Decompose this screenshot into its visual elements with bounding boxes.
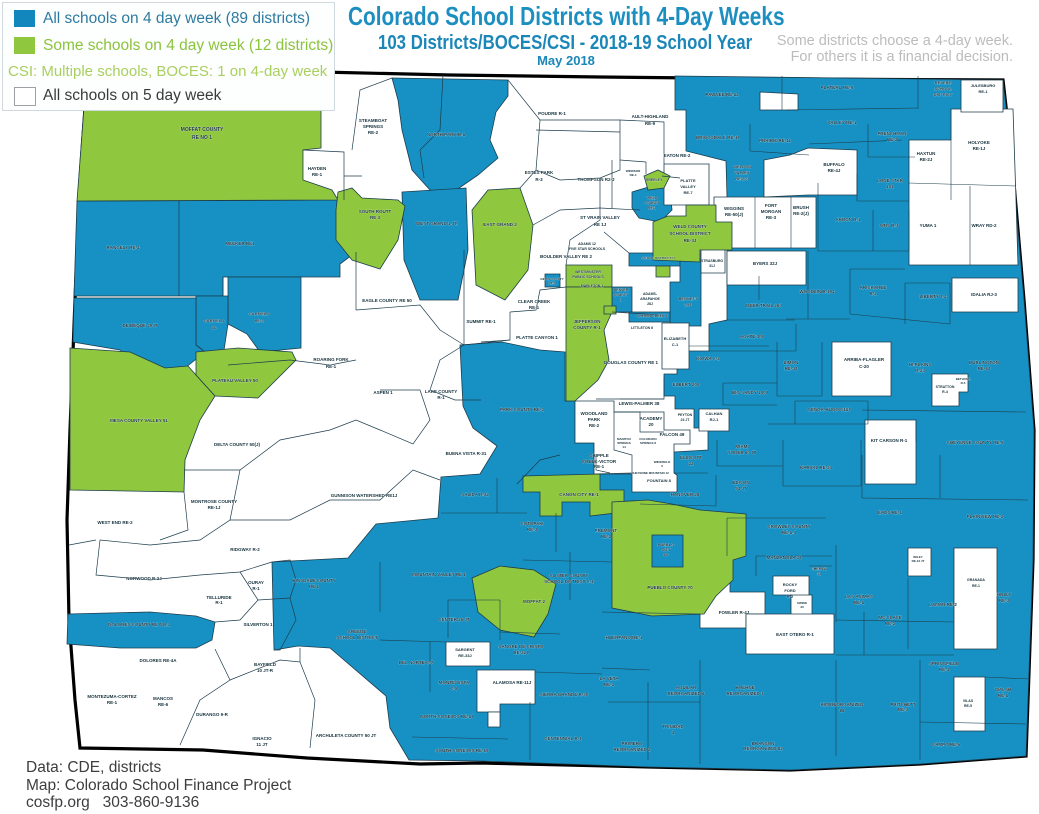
svg-text:NORTH CONEJOS RE-1J: NORTH CONEJOS RE-1J bbox=[420, 714, 474, 719]
svg-text:GARFIELD: GARFIELD bbox=[204, 318, 225, 323]
svg-text:NORWOOD R-2J: NORWOOD R-2J bbox=[126, 576, 162, 581]
svg-text:PAWNEE RE-12: PAWNEE RE-12 bbox=[705, 92, 739, 97]
svg-text:RE-1: RE-1 bbox=[529, 305, 540, 310]
svg-text:MORGAN: MORGAN bbox=[761, 209, 782, 214]
svg-text:RE-2J: RE-2J bbox=[920, 157, 933, 162]
svg-text:C-20: C-20 bbox=[859, 364, 869, 369]
svg-text:SALIDA R-32: SALIDA R-32 bbox=[461, 492, 489, 497]
svg-text:PARK: PARK bbox=[588, 417, 601, 422]
svg-text:HOLLY: HOLLY bbox=[997, 592, 1012, 597]
svg-text:ROCKY: ROCKY bbox=[783, 582, 798, 587]
svg-text:AGATE 300: AGATE 300 bbox=[740, 334, 765, 339]
svg-text:WEST END RE-2: WEST END RE-2 bbox=[97, 520, 133, 525]
svg-text:EAST GRAND 2: EAST GRAND 2 bbox=[483, 222, 517, 227]
svg-text:RE-1: RE-1 bbox=[854, 600, 865, 605]
svg-text:OURAY: OURAY bbox=[248, 580, 264, 585]
svg-text:FALCON 49: FALCON 49 bbox=[660, 432, 685, 437]
svg-text:ELIZABETH: ELIZABETH bbox=[664, 336, 687, 341]
svg-text:EAST OTERO R-1: EAST OTERO R-1 bbox=[776, 632, 814, 637]
svg-text:GENOA-HUGO C113: GENOA-HUGO C113 bbox=[807, 407, 851, 412]
svg-text:RE-6: RE-6 bbox=[158, 702, 169, 707]
svg-text:ACADEMY: ACADEMY bbox=[640, 416, 663, 421]
svg-text:1: 1 bbox=[620, 298, 622, 302]
svg-text:RE-13 JT: RE-13 JT bbox=[912, 559, 925, 563]
svg-text:POUDRE R-1: POUDRE R-1 bbox=[538, 111, 566, 116]
svg-text:RE-2: RE-2 bbox=[601, 534, 612, 539]
svg-text:CHERRY CREEK 5: CHERRY CREEK 5 bbox=[637, 314, 668, 318]
svg-text:BRIGGSDALE RE-10: BRIGGSDALE RE-10 bbox=[696, 135, 741, 140]
svg-text:KARVAL RE-23: KARVAL RE-23 bbox=[800, 465, 833, 470]
svg-text:LEWIS-PALMER 38: LEWIS-PALMER 38 bbox=[619, 401, 660, 406]
svg-text:FIVE STAR SCHOOLS: FIVE STAR SCHOOLS bbox=[569, 247, 606, 251]
svg-text:BIG SANDY 100J: BIG SANDY 100J bbox=[732, 390, 769, 395]
svg-text:RE-1: RE-1 bbox=[594, 464, 605, 469]
svg-text:SCHOOL DISTRICT: SCHOOL DISTRICT bbox=[669, 231, 710, 236]
svg-text:MEEKER RE1: MEEKER RE1 bbox=[225, 241, 255, 246]
svg-text:SPRINGFIELD: SPRINGFIELD bbox=[929, 661, 960, 666]
svg-text:ST VRAIN VALLEY: ST VRAIN VALLEY bbox=[580, 215, 620, 220]
svg-text:CENTER 26 JT: CENTER 26 JT bbox=[438, 617, 470, 622]
svg-text:ARAPAHOE: ARAPAHOE bbox=[640, 297, 660, 301]
svg-text:FRENCHMAN: FRENCHMAN bbox=[878, 131, 907, 136]
svg-text:23 JT: 23 JT bbox=[681, 418, 691, 422]
svg-text:MOFFAT 2: MOFFAT 2 bbox=[523, 599, 545, 604]
svg-text:PLATTE: PLATTE bbox=[680, 178, 696, 183]
svg-text:LONE STAR: LONE STAR bbox=[877, 178, 903, 183]
svg-text:RE-4: RE-4 bbox=[630, 173, 637, 177]
svg-text:MC CLAVE: MC CLAVE bbox=[878, 615, 901, 620]
svg-text:R-4: R-4 bbox=[942, 390, 948, 394]
svg-text:DEL NORTE C-7: DEL NORTE C-7 bbox=[399, 660, 434, 665]
svg-text:DURANGO 9-R: DURANGO 9-R bbox=[196, 712, 229, 717]
svg-text:RE-3J: RE-3J bbox=[684, 238, 697, 243]
svg-text:RE-5: RE-5 bbox=[964, 704, 972, 708]
svg-text:ESTES PARK: ESTES PARK bbox=[525, 170, 554, 175]
svg-text:31J: 31J bbox=[709, 264, 715, 268]
svg-text:R-1: R-1 bbox=[252, 586, 260, 591]
svg-text:HAXTUN: HAXTUN bbox=[917, 151, 936, 156]
svg-text:AKRON R-1: AKRON R-1 bbox=[835, 217, 860, 222]
svg-text:DOLORES COUNTY RE NO.2: DOLORES COUNTY RE NO.2 bbox=[108, 622, 170, 627]
svg-text:RE-20J: RE-20J bbox=[735, 176, 749, 181]
svg-text:LIBERTY J-4: LIBERTY J-4 bbox=[920, 294, 947, 299]
svg-text:HINSDALE COUNTY: HINSDALE COUNTY bbox=[292, 578, 335, 583]
svg-text:C-8: C-8 bbox=[450, 686, 458, 691]
svg-text:RE-3: RE-3 bbox=[527, 527, 538, 532]
svg-text:RE-1J: RE-1J bbox=[208, 505, 221, 510]
svg-text:RE-22J: RE-22J bbox=[513, 650, 529, 655]
svg-text:ARICKAREE: ARICKAREE bbox=[860, 285, 887, 290]
svg-text:RE-2: RE-2 bbox=[254, 318, 264, 323]
svg-text:ELBERT 200: ELBERT 200 bbox=[673, 382, 700, 387]
svg-text:PLAINVIEW RE-2: PLAINVIEW RE-2 bbox=[967, 514, 1004, 519]
svg-text:FOUNTAIN 8: FOUNTAIN 8 bbox=[647, 478, 671, 483]
svg-text:RE-1: RE-1 bbox=[312, 172, 323, 177]
svg-text:VALLEY: VALLEY bbox=[680, 184, 696, 189]
svg-text:HUERFANO RE-1: HUERFANO RE-1 bbox=[606, 635, 643, 640]
svg-text:CRIPPLE: CRIPPLE bbox=[589, 453, 609, 458]
svg-text:DE BEQUE 49JT: DE BEQUE 49JT bbox=[122, 323, 157, 328]
svg-text:ARRIBA-FLAGLER: ARRIBA-FLAGLER bbox=[844, 357, 885, 362]
svg-text:GUNNISON WATERSHED RE1J: GUNNISON WATERSHED RE1J bbox=[331, 493, 398, 498]
svg-text:EDISON: EDISON bbox=[732, 480, 749, 485]
svg-text:BOULDER VALLEY RE 2: BOULDER VALLEY RE 2 bbox=[540, 254, 593, 259]
svg-text:CLEAR CREEK: CLEAR CREEK bbox=[518, 299, 551, 304]
svg-text:WOODLAND: WOODLAND bbox=[581, 411, 609, 416]
svg-text:RE-7: RE-7 bbox=[683, 190, 693, 195]
svg-text:RE-3: RE-3 bbox=[999, 598, 1010, 603]
svg-text:RE-3: RE-3 bbox=[898, 707, 909, 712]
svg-text:WESTMINSTER: WESTMINSTER bbox=[575, 270, 601, 274]
svg-text:RE-1: RE-1 bbox=[549, 281, 556, 285]
svg-text:54 JT: 54 JT bbox=[735, 486, 747, 491]
svg-text:PRIMERO: PRIMERO bbox=[621, 741, 643, 746]
svg-text:HOEHNE: HOEHNE bbox=[735, 685, 754, 690]
svg-text:R-3: R-3 bbox=[535, 177, 543, 182]
svg-text:RE-1: RE-1 bbox=[326, 364, 337, 369]
svg-text:AGUILAR: AGUILAR bbox=[676, 685, 697, 690]
svg-text:RIDGWAY R-2: RIDGWAY R-2 bbox=[230, 547, 260, 552]
svg-text:COTOPAXI: COTOPAXI bbox=[520, 521, 543, 526]
svg-text:RE-3: RE-3 bbox=[766, 215, 777, 220]
svg-text:14: 14 bbox=[622, 445, 626, 449]
svg-text:33: 33 bbox=[800, 605, 804, 609]
svg-text:STRATTON: STRATTON bbox=[936, 385, 955, 389]
svg-text:RE 1J: RE 1J bbox=[594, 222, 607, 227]
svg-text:NORTH PARK R-1: NORTH PARK R-1 bbox=[427, 132, 466, 137]
svg-text:RE-1: RE-1 bbox=[998, 693, 1009, 698]
svg-text:LIMON: LIMON bbox=[784, 360, 799, 365]
svg-text:WOODLIN R-104: WOODLIN R-104 bbox=[799, 289, 835, 294]
svg-text:BRUSH: BRUSH bbox=[793, 205, 809, 210]
svg-text:HOLYOKE: HOLYOKE bbox=[968, 140, 990, 145]
svg-text:CHEYENNE MOUNTAIN 12: CHEYENNE MOUNTAIN 12 bbox=[631, 471, 669, 475]
svg-text:10 JT-R: 10 JT-R bbox=[257, 668, 274, 673]
svg-text:IGNACIO: IGNACIO bbox=[252, 736, 272, 741]
svg-text:SPRINGS: SPRINGS bbox=[363, 124, 383, 129]
svg-text:VALLEY RE-1: VALLEY RE-1 bbox=[828, 120, 857, 125]
svg-text:R-2: R-2 bbox=[869, 291, 877, 296]
svg-text:16: 16 bbox=[212, 325, 217, 330]
svg-text:COUNTY R-1: COUNTY R-1 bbox=[573, 325, 601, 330]
svg-text:RE NO 1: RE NO 1 bbox=[192, 135, 212, 141]
svg-text:RE-1-J: RE-1-J bbox=[782, 530, 797, 535]
svg-text:MONTROSE COUNTY: MONTROSE COUNTY bbox=[191, 499, 237, 504]
svg-text:AULT-HIGHLAND: AULT-HIGHLAND bbox=[632, 114, 669, 119]
svg-text:WELD COUNTY: WELD COUNTY bbox=[673, 224, 707, 229]
svg-text:RE-3: RE-3 bbox=[887, 137, 898, 142]
svg-text:RE-2: RE-2 bbox=[589, 423, 600, 428]
svg-text:ADAMS 12: ADAMS 12 bbox=[578, 242, 596, 246]
svg-text:MIAMI: MIAMI bbox=[735, 444, 748, 449]
svg-text:PLATEAU VALLEY 50: PLATEAU VALLEY 50 bbox=[212, 378, 258, 383]
svg-text:REORGANIZED 82: REORGANIZED 82 bbox=[743, 746, 783, 751]
svg-text:RE-1: RE-1 bbox=[978, 89, 988, 94]
svg-text:RE-4J: RE-4J bbox=[828, 168, 841, 173]
svg-text:GREELEY: GREELEY bbox=[646, 178, 663, 182]
svg-text:MONTE VISTA: MONTE VISTA bbox=[439, 680, 470, 685]
svg-text:ARCHULETA COUNTY 50 JT: ARCHULETA COUNTY 50 JT bbox=[316, 733, 377, 738]
svg-text:DISTRICT: DISTRICT bbox=[934, 92, 953, 97]
svg-text:PUEBLO COUNTY 70: PUEBLO COUNTY 70 bbox=[647, 585, 693, 590]
svg-text:THOMPSON R2-J: THOMPSON R2-J bbox=[577, 177, 615, 182]
svg-text:ELLICOTT: ELLICOTT bbox=[680, 455, 702, 460]
svg-text:VILAS: VILAS bbox=[963, 699, 974, 703]
svg-text:RE-2: RE-2 bbox=[604, 682, 615, 687]
svg-text:DEER TRAIL 26J: DEER TRAIL 26J bbox=[746, 303, 782, 308]
svg-text:JULESBURG: JULESBURG bbox=[971, 83, 996, 88]
svg-text:JEFFERSON: JEFFERSON bbox=[573, 319, 600, 324]
svg-text:RE-1: RE-1 bbox=[972, 584, 980, 588]
svg-text:PLATEAU RE-5: PLATEAU RE-5 bbox=[821, 85, 854, 90]
svg-text:LAS ANIMAS: LAS ANIMAS bbox=[845, 594, 873, 599]
svg-text:SUMMIT RE-1: SUMMIT RE-1 bbox=[466, 319, 496, 324]
svg-text:FREMONT: FREMONT bbox=[595, 528, 617, 533]
svg-text:DOUGLAS COUNTY RE 1: DOUGLAS COUNTY RE 1 bbox=[604, 360, 658, 365]
svg-text:ADAMS-: ADAMS- bbox=[643, 292, 658, 296]
svg-text:YUMA 1: YUMA 1 bbox=[920, 223, 937, 228]
svg-text:VALLEY: VALLEY bbox=[734, 170, 750, 175]
svg-text:HI-PLAINS: HI-PLAINS bbox=[909, 362, 932, 367]
svg-text:MESA COUNTY VALLEY 51: MESA COUNTY VALLEY 51 bbox=[110, 418, 168, 423]
svg-text:11 JT: 11 JT bbox=[256, 742, 268, 747]
svg-text:RE-50(J): RE-50(J) bbox=[725, 212, 744, 217]
svg-text:BYERS 32J: BYERS 32J bbox=[753, 261, 778, 266]
svg-text:31: 31 bbox=[817, 572, 821, 576]
svg-text:SIERRA GRANDE R-30: SIERRA GRANDE R-30 bbox=[540, 692, 589, 697]
svg-text:CENTENNIAL R-1: CENTENNIAL R-1 bbox=[544, 736, 582, 741]
svg-text:PLATTE CANYON 1: PLATTE CANYON 1 bbox=[516, 335, 558, 340]
svg-text:SOUTH CONEJOS RE-10: SOUTH CONEJOS RE-10 bbox=[435, 748, 489, 753]
svg-text:MANCOS: MANCOS bbox=[153, 696, 173, 701]
svg-text:HAYDEN: HAYDEN bbox=[308, 166, 327, 171]
svg-text:FORD: FORD bbox=[784, 588, 795, 593]
svg-text:SCHOOL DISTRICT: SCHOOL DISTRICT bbox=[336, 635, 377, 640]
svg-text:BENNETT: BENNETT bbox=[679, 296, 698, 301]
svg-text:WELD: WELD bbox=[647, 196, 658, 200]
svg-text:CHERAW: CHERAW bbox=[811, 567, 827, 571]
svg-text:FOWLER R-4J: FOWLER R-4J bbox=[719, 610, 750, 615]
svg-text:SARGENT: SARGENT bbox=[455, 647, 475, 652]
svg-text:RE-1J: RE-1J bbox=[973, 146, 986, 151]
svg-text:EATON RE-2: EATON RE-2 bbox=[664, 153, 691, 158]
svg-text:KIT CARSON R-1: KIT CARSON R-1 bbox=[871, 438, 908, 443]
svg-text:MANZANOLA 3J: MANZANOLA 3J bbox=[766, 555, 802, 560]
svg-text:CHEYENNE COUNTY RE-5: CHEYENNE COUNTY RE-5 bbox=[947, 440, 1004, 445]
svg-text:ROARING FORK: ROARING FORK bbox=[313, 357, 349, 362]
svg-text:RANGELY RE-4: RANGELY RE-4 bbox=[106, 245, 140, 250]
svg-text:EADS RE-1: EADS RE-1 bbox=[878, 510, 903, 515]
svg-text:RE-1: RE-1 bbox=[648, 206, 656, 210]
svg-text:IDALIA RJ-3: IDALIA RJ-3 bbox=[971, 292, 997, 297]
svg-text:LITTLETON 6: LITTLETON 6 bbox=[631, 326, 653, 330]
svg-text:RE-1: RE-1 bbox=[107, 700, 118, 705]
svg-text:RE-4J: RE-4J bbox=[785, 366, 798, 371]
svg-text:MONTEZUMA-CORTEZ: MONTEZUMA-CORTEZ bbox=[87, 694, 136, 699]
svg-text:FORT: FORT bbox=[765, 203, 777, 208]
svg-text:ASPEN 1: ASPEN 1 bbox=[373, 390, 393, 395]
svg-text:RE-33J: RE-33J bbox=[458, 653, 472, 658]
svg-text:PRAIRIE RE-11: PRAIRIE RE-11 bbox=[759, 138, 792, 143]
svg-text:CREEDE: CREEDE bbox=[348, 629, 367, 634]
svg-text:GRANADA: GRANADA bbox=[967, 578, 985, 582]
svg-text:LAMAR RE-2: LAMAR RE-2 bbox=[929, 602, 957, 607]
svg-text:RE-2(J): RE-2(J) bbox=[793, 211, 809, 216]
svg-text:CROWLEY COUNTY: CROWLEY COUNTY bbox=[767, 524, 810, 529]
svg-text:HANOVER 28: HANOVER 28 bbox=[671, 492, 700, 497]
svg-text:KIM REORGANIZED: KIM REORGANIZED bbox=[821, 702, 865, 707]
svg-text:TRINIDAD: TRINIDAD bbox=[662, 724, 684, 729]
svg-text:LAKE COUNTY: LAKE COUNTY bbox=[425, 389, 458, 394]
svg-text:CUSTER COUNTY: CUSTER COUNTY bbox=[550, 573, 589, 578]
svg-text:CALHAN: CALHAN bbox=[706, 411, 723, 416]
svg-text:SANGRE DE CRISTO: SANGRE DE CRISTO bbox=[499, 644, 544, 649]
svg-text:RE 3: RE 3 bbox=[370, 215, 381, 220]
svg-text:WRAY RD-2: WRAY RD-2 bbox=[971, 223, 997, 228]
svg-text:22: 22 bbox=[688, 461, 694, 466]
svg-text:SILVERTON 1: SILVERTON 1 bbox=[243, 622, 273, 627]
svg-text:REORGANIZED 6: REORGANIZED 6 bbox=[667, 691, 705, 696]
svg-text:MOUNTAIN VALLEY RE 1: MOUNTAIN VALLEY RE 1 bbox=[412, 572, 466, 577]
svg-text:SCHOOL DISTRICT 27J: SCHOOL DISTRICT 27J bbox=[641, 256, 675, 260]
svg-text:COUNTY: COUNTY bbox=[614, 293, 629, 297]
svg-text:R-1: R-1 bbox=[215, 600, 223, 605]
svg-text:BURLINGTON: BURLINGTON bbox=[969, 360, 999, 365]
svg-text:DELTA COUNTY 50(J): DELTA COUNTY 50(J) bbox=[214, 442, 261, 447]
svg-text:REORGANIZED 2: REORGANIZED 2 bbox=[613, 747, 651, 752]
svg-text:OTIS R-3: OTIS R-3 bbox=[879, 223, 898, 228]
svg-text:ALAMOSA RE-11J: ALAMOSA RE-11J bbox=[493, 680, 532, 685]
svg-text:YODER 60 JT: YODER 60 JT bbox=[728, 450, 757, 455]
svg-text:STRASBURG: STRASBURG bbox=[701, 259, 723, 263]
svg-text:BUFFALO: BUFFALO bbox=[823, 162, 845, 167]
svg-text:WELDON: WELDON bbox=[733, 164, 751, 169]
svg-text:BAYFIELD: BAYFIELD bbox=[254, 662, 277, 667]
svg-text:SOUTH ROUTT: SOUTH ROUTT bbox=[359, 209, 392, 214]
svg-text:RE-6J: RE-6J bbox=[978, 366, 991, 371]
svg-text:RE-4: RE-4 bbox=[939, 667, 950, 672]
svg-text:RE-2: RE-2 bbox=[368, 130, 379, 135]
svg-text:BUENA VISTA R-31: BUENA VISTA R-31 bbox=[446, 451, 487, 456]
svg-text:WALSH: WALSH bbox=[995, 687, 1011, 692]
svg-text:DOLORES RE-4A: DOLORES RE-4A bbox=[139, 658, 177, 663]
svg-text:MAPLETON 1: MAPLETON 1 bbox=[581, 284, 604, 288]
svg-text:REVERE: REVERE bbox=[935, 80, 952, 85]
svg-text:PUBLIC SCHOOLS: PUBLIC SCHOOLS bbox=[572, 275, 604, 279]
svg-text:R-23: R-23 bbox=[915, 368, 925, 373]
svg-text:R-2: R-2 bbox=[787, 594, 794, 599]
svg-text:COUNTY: COUNTY bbox=[645, 201, 660, 205]
svg-text:WIGGINS: WIGGINS bbox=[724, 206, 744, 211]
svg-text:RE 1: RE 1 bbox=[309, 584, 320, 589]
svg-text:20: 20 bbox=[648, 422, 654, 427]
svg-text:R-5: R-5 bbox=[961, 381, 966, 385]
svg-text:RE-2: RE-2 bbox=[885, 621, 896, 626]
svg-text:GARFIELD: GARFIELD bbox=[249, 311, 270, 316]
svg-text:28J: 28J bbox=[647, 302, 653, 306]
svg-text:SCHOOL: SCHOOL bbox=[934, 86, 952, 91]
svg-text:KIOWA C-2: KIOWA C-2 bbox=[696, 356, 720, 361]
svg-text:C-1: C-1 bbox=[672, 342, 679, 347]
svg-text:29J: 29J bbox=[685, 302, 692, 307]
svg-text:REORGANIZED 3: REORGANIZED 3 bbox=[726, 691, 764, 696]
svg-text:PEYTON: PEYTON bbox=[678, 413, 693, 417]
svg-text:RJ-1: RJ-1 bbox=[710, 417, 719, 422]
svg-text:CAMPO RE-6: CAMPO RE-6 bbox=[932, 742, 961, 747]
svg-text:EAGLE COUNTY RE 50: EAGLE COUNTY RE 50 bbox=[362, 298, 412, 303]
svg-text:60: 60 bbox=[664, 552, 669, 557]
svg-text:101: 101 bbox=[886, 184, 894, 189]
svg-text:LA VETA: LA VETA bbox=[600, 676, 619, 681]
svg-text:WEST GRAND 1-JT.: WEST GRAND 1-JT. bbox=[416, 221, 458, 226]
svg-text:MOFFAT COUNTY: MOFFAT COUNTY bbox=[181, 127, 224, 133]
svg-text:R-1: R-1 bbox=[437, 395, 445, 400]
svg-text:DENVER: DENVER bbox=[614, 288, 629, 292]
svg-text:STEAMBOAT: STEAMBOAT bbox=[359, 118, 387, 123]
svg-text:CANON CITY RE-1: CANON CITY RE-1 bbox=[559, 492, 599, 497]
svg-text:SPRINGS 8: SPRINGS 8 bbox=[640, 441, 656, 445]
svg-text:88: 88 bbox=[839, 708, 845, 713]
svg-text:PARK COUNTY RE-2: PARK COUNTY RE-2 bbox=[500, 407, 545, 412]
svg-text:SCHOOL DISTRICT C-1: SCHOOL DISTRICT C-1 bbox=[544, 579, 594, 584]
svg-text:RE-9: RE-9 bbox=[645, 121, 656, 126]
